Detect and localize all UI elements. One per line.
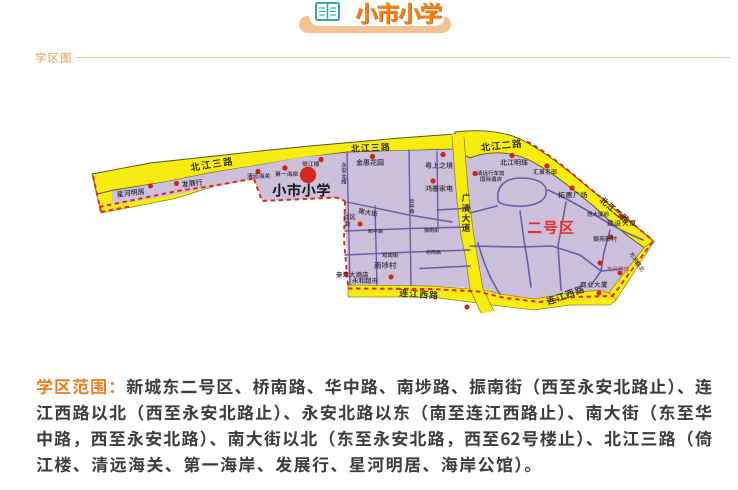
svg-text:华中路: 华中路 <box>409 198 416 214</box>
svg-text:粤上之境: 粤上之境 <box>425 161 453 171</box>
svg-text:二号区: 二号区 <box>527 217 575 238</box>
svg-text:汇景名邸: 汇景名邸 <box>533 167 557 176</box>
svg-text:拓惠广场: 拓惠广场 <box>558 191 588 201</box>
svg-text:鸿基家电: 鸿基家电 <box>425 184 453 194</box>
svg-text:银苑新村: 银苑新村 <box>593 234 617 243</box>
svg-text:北江明珠: 北江明珠 <box>500 158 528 168</box>
svg-text:东风明珠: 东风明珠 <box>607 265 630 273</box>
svg-text:第一海岸: 第一海岸 <box>275 169 298 178</box>
svg-text:振南街: 振南街 <box>424 227 439 234</box>
svg-text:观南街: 观南街 <box>382 251 399 259</box>
svg-text:永和超市: 永和超市 <box>352 275 379 285</box>
svg-text:桥南路: 桥南路 <box>426 249 441 256</box>
svg-text:广清大道: 广清大道 <box>460 193 473 233</box>
svg-text:倚江楼: 倚江楼 <box>302 159 320 168</box>
svg-text:金惠花园: 金惠花园 <box>356 158 384 168</box>
svg-text:连江西路: 连江西路 <box>399 286 440 302</box>
svg-text:北江三路: 北江三路 <box>350 140 391 155</box>
svg-text:南埗村: 南埗村 <box>374 260 397 271</box>
svg-text:清远海关: 清远海关 <box>247 171 270 180</box>
svg-text:国际酒店: 国际酒店 <box>480 175 503 183</box>
svg-text:小市小学: 小市小学 <box>272 180 331 201</box>
svg-text:会: 会 <box>344 218 351 228</box>
svg-text:和平路: 和平路 <box>368 228 383 235</box>
svg-text:永安北路: 永安北路 <box>340 162 348 185</box>
